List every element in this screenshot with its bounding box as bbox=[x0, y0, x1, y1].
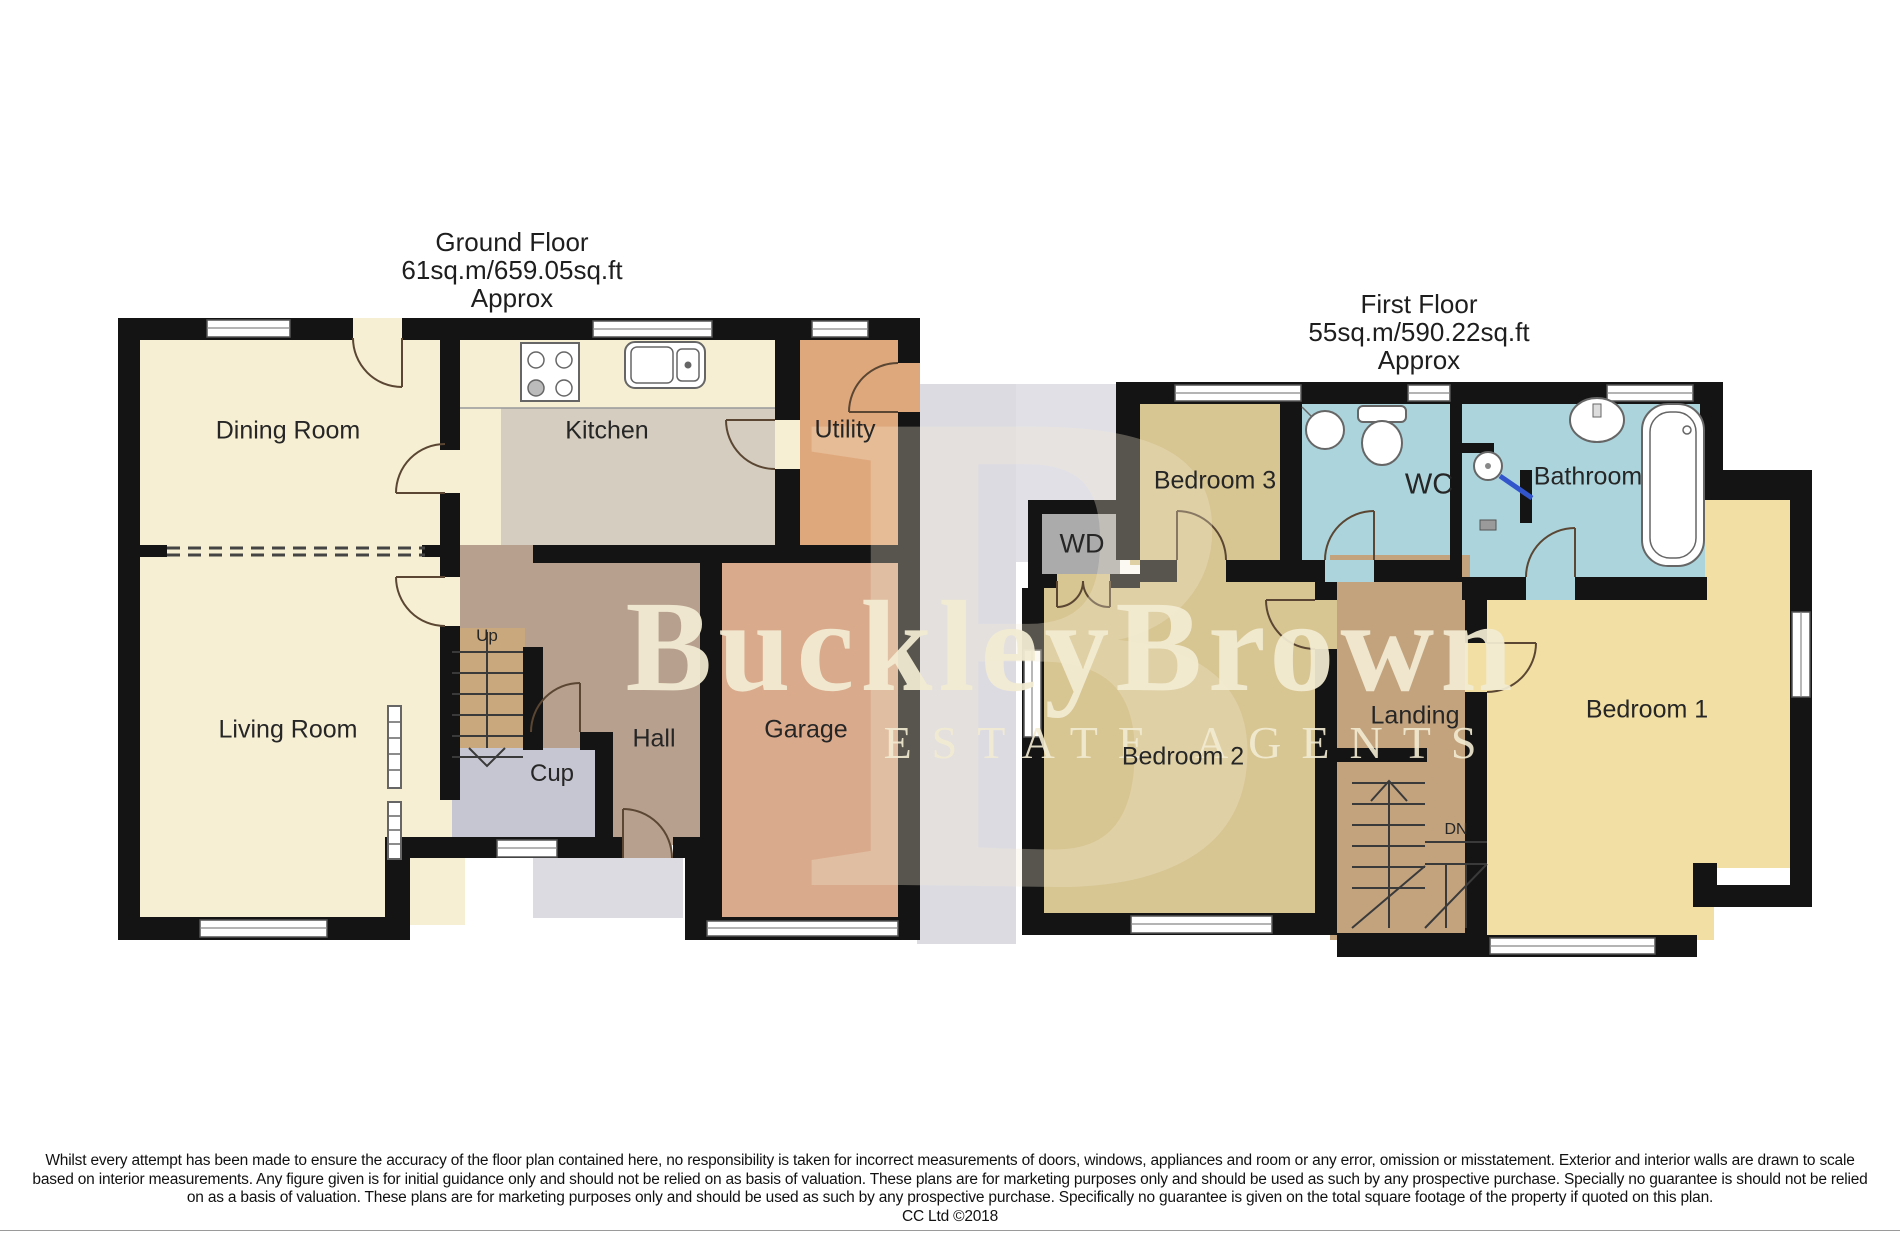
disclaimer-line-4: CC Ltd ©2018 bbox=[0, 1208, 1900, 1227]
room-label-kitchen: Kitchen bbox=[565, 417, 648, 446]
room-label-garage: Garage bbox=[764, 716, 847, 745]
room-label-hall: Hall bbox=[632, 725, 675, 754]
disclaimer-line-2: based on interior measurements. Any figu… bbox=[0, 1171, 1900, 1190]
stairs-dn-label: DN bbox=[1444, 821, 1467, 839]
disclaimer-line-3: on as a basis of valuation. These plans … bbox=[0, 1189, 1900, 1208]
room-label-wc: WC bbox=[1405, 469, 1453, 502]
wardrobe-label: WD bbox=[1060, 529, 1105, 560]
room-label-bedroom-2: Bedroom 2 bbox=[1122, 743, 1244, 772]
room-label-utility: Utility bbox=[814, 416, 875, 445]
room-label-bathroom: Bathroom bbox=[1534, 463, 1642, 492]
room-label-dining-room: Dining Room bbox=[216, 417, 361, 446]
floorplan-page: B BuckleyBrown ESTATE AGENTS Ground Floo… bbox=[0, 0, 1900, 1244]
room-label-bedroom-3: Bedroom 3 bbox=[1154, 467, 1276, 496]
stairs-up-label: Up bbox=[476, 626, 498, 646]
footer-divider-line bbox=[0, 1230, 1900, 1231]
room-label-cup: Cup bbox=[530, 760, 574, 788]
room-label-bedroom-1: Bedroom 1 bbox=[1586, 696, 1708, 725]
disclaimer-line-1: Whilst every attempt has been made to en… bbox=[0, 1152, 1900, 1171]
room-label-living-room: Living Room bbox=[219, 716, 358, 745]
disclaimer: Whilst every attempt has been made to en… bbox=[0, 1152, 1900, 1226]
room-labels: Dining Room Kitchen Utility Living Room … bbox=[0, 0, 1900, 1244]
room-label-landing: Landing bbox=[1371, 702, 1460, 731]
